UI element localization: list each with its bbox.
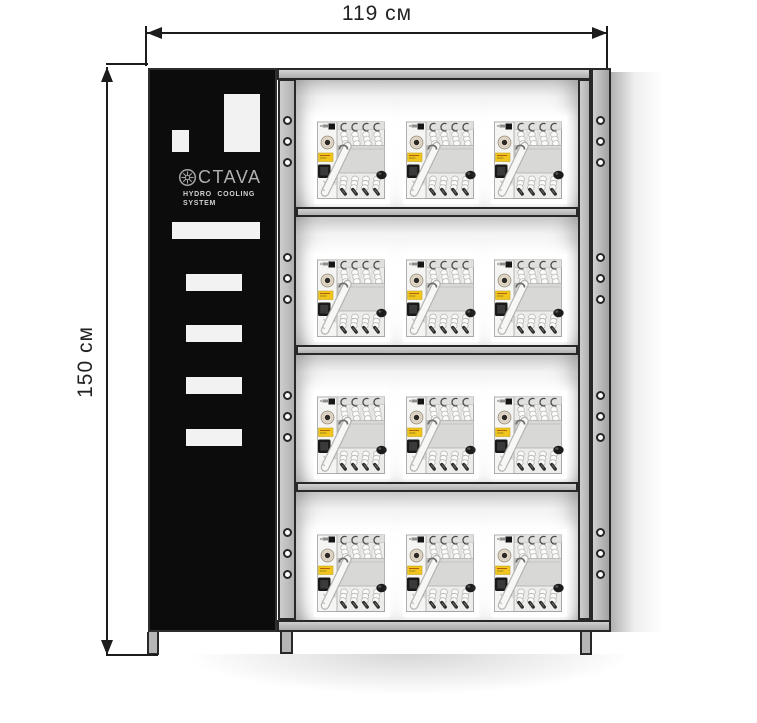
width-arrow-right-icon [592, 27, 607, 39]
brand-name: CTAVA [198, 167, 262, 188]
mounting-hole [283, 412, 292, 421]
height-extension-bottom [106, 654, 158, 656]
device-graphic [491, 254, 567, 342]
device-graphic [403, 116, 479, 204]
hydro-cooling-unit [314, 529, 390, 617]
mounting-hole [596, 549, 605, 558]
panel-vent-slot [186, 325, 242, 342]
mounting-hole [283, 295, 292, 304]
panel-vent-slot [186, 377, 242, 394]
floor-shadow [140, 654, 680, 714]
hydro-cooling-unit [491, 529, 567, 617]
device-graphic [314, 529, 390, 617]
device-graphic [491, 391, 567, 479]
mounting-hole [596, 116, 605, 125]
hydro-cooling-unit [403, 529, 479, 617]
hydro-cooling-unit [491, 116, 567, 204]
hydro-cooling-unit [403, 254, 479, 342]
mounting-hole [283, 528, 292, 537]
width-dimension-label: 119 см [287, 2, 467, 26]
mounting-hole [596, 528, 605, 537]
mounting-hole [596, 433, 605, 442]
mounting-hole [596, 570, 605, 579]
octava-cabinet-diagram: 119 см 150 см CTAVA HYDRO COOLING [0, 0, 757, 723]
mounting-hole [283, 274, 292, 283]
cabinet-foot-middle [280, 632, 293, 654]
device-graphic [491, 116, 567, 204]
mounting-hole [283, 137, 292, 146]
mounting-hole [283, 253, 292, 262]
mounting-hole [596, 158, 605, 167]
device-graphic [314, 116, 390, 204]
cabinet-side-shadow [611, 72, 663, 632]
device-graphic [491, 529, 567, 617]
cabinet-foot-right [580, 632, 592, 655]
hydro-cooling-unit [403, 391, 479, 479]
panel-vent-slot [186, 274, 242, 291]
control-panel: CTAVA HYDRO COOLING SYSTEM [148, 68, 277, 632]
height-extension-top [106, 63, 148, 65]
octava-emblem-icon [178, 168, 197, 187]
mounting-hole [596, 412, 605, 421]
height-dimension-line [106, 67, 108, 655]
panel-vent-slot [186, 429, 242, 446]
mounting-hole [283, 433, 292, 442]
hydro-cooling-unit [491, 391, 567, 479]
height-arrow-top-icon [101, 67, 113, 82]
rack-bottom-bar [277, 620, 611, 632]
mounting-hole [283, 391, 292, 400]
rack-right-side-panel [591, 68, 611, 632]
mounting-hole [283, 116, 292, 125]
shelf-board [296, 207, 578, 217]
hydro-cooling-unit [403, 116, 479, 204]
brand-logo: CTAVA [178, 167, 262, 188]
height-dimension-label: 150 см [73, 300, 99, 424]
device-graphic [314, 391, 390, 479]
mounting-hole [283, 158, 292, 167]
mounting-hole [596, 253, 605, 262]
hydro-cooling-unit [314, 391, 390, 479]
device-graphic [403, 391, 479, 479]
hydro-cooling-unit [314, 116, 390, 204]
width-extension-left [145, 26, 147, 66]
height-arrow-bottom-icon [101, 640, 113, 655]
panel-subtitle-line1: HYDRO COOLING [183, 191, 255, 198]
shelf-board [296, 345, 578, 355]
device-graphic [314, 254, 390, 342]
shelf-board [296, 482, 578, 492]
mounting-hole [596, 137, 605, 146]
cabinet-foot-left [147, 632, 159, 655]
mounting-hole [596, 295, 605, 304]
rack-inner-right-post [578, 79, 591, 620]
width-arrow-left-icon [147, 27, 162, 39]
panel-cutout-display [224, 94, 260, 152]
width-dimension-line [147, 32, 607, 34]
panel-cutout-switch [172, 130, 189, 152]
width-extension-right [606, 26, 608, 68]
rack-top-bar [277, 68, 591, 80]
mounting-hole [283, 570, 292, 579]
hydro-cooling-unit [314, 254, 390, 342]
panel-subtitle-line2: SYSTEM [183, 200, 216, 207]
mounting-hole [596, 391, 605, 400]
device-graphic [403, 254, 479, 342]
hydro-cooling-unit [491, 254, 567, 342]
mounting-hole [596, 274, 605, 283]
mounting-hole [283, 549, 292, 558]
panel-cutout-bar [172, 222, 260, 239]
device-graphic [403, 529, 479, 617]
